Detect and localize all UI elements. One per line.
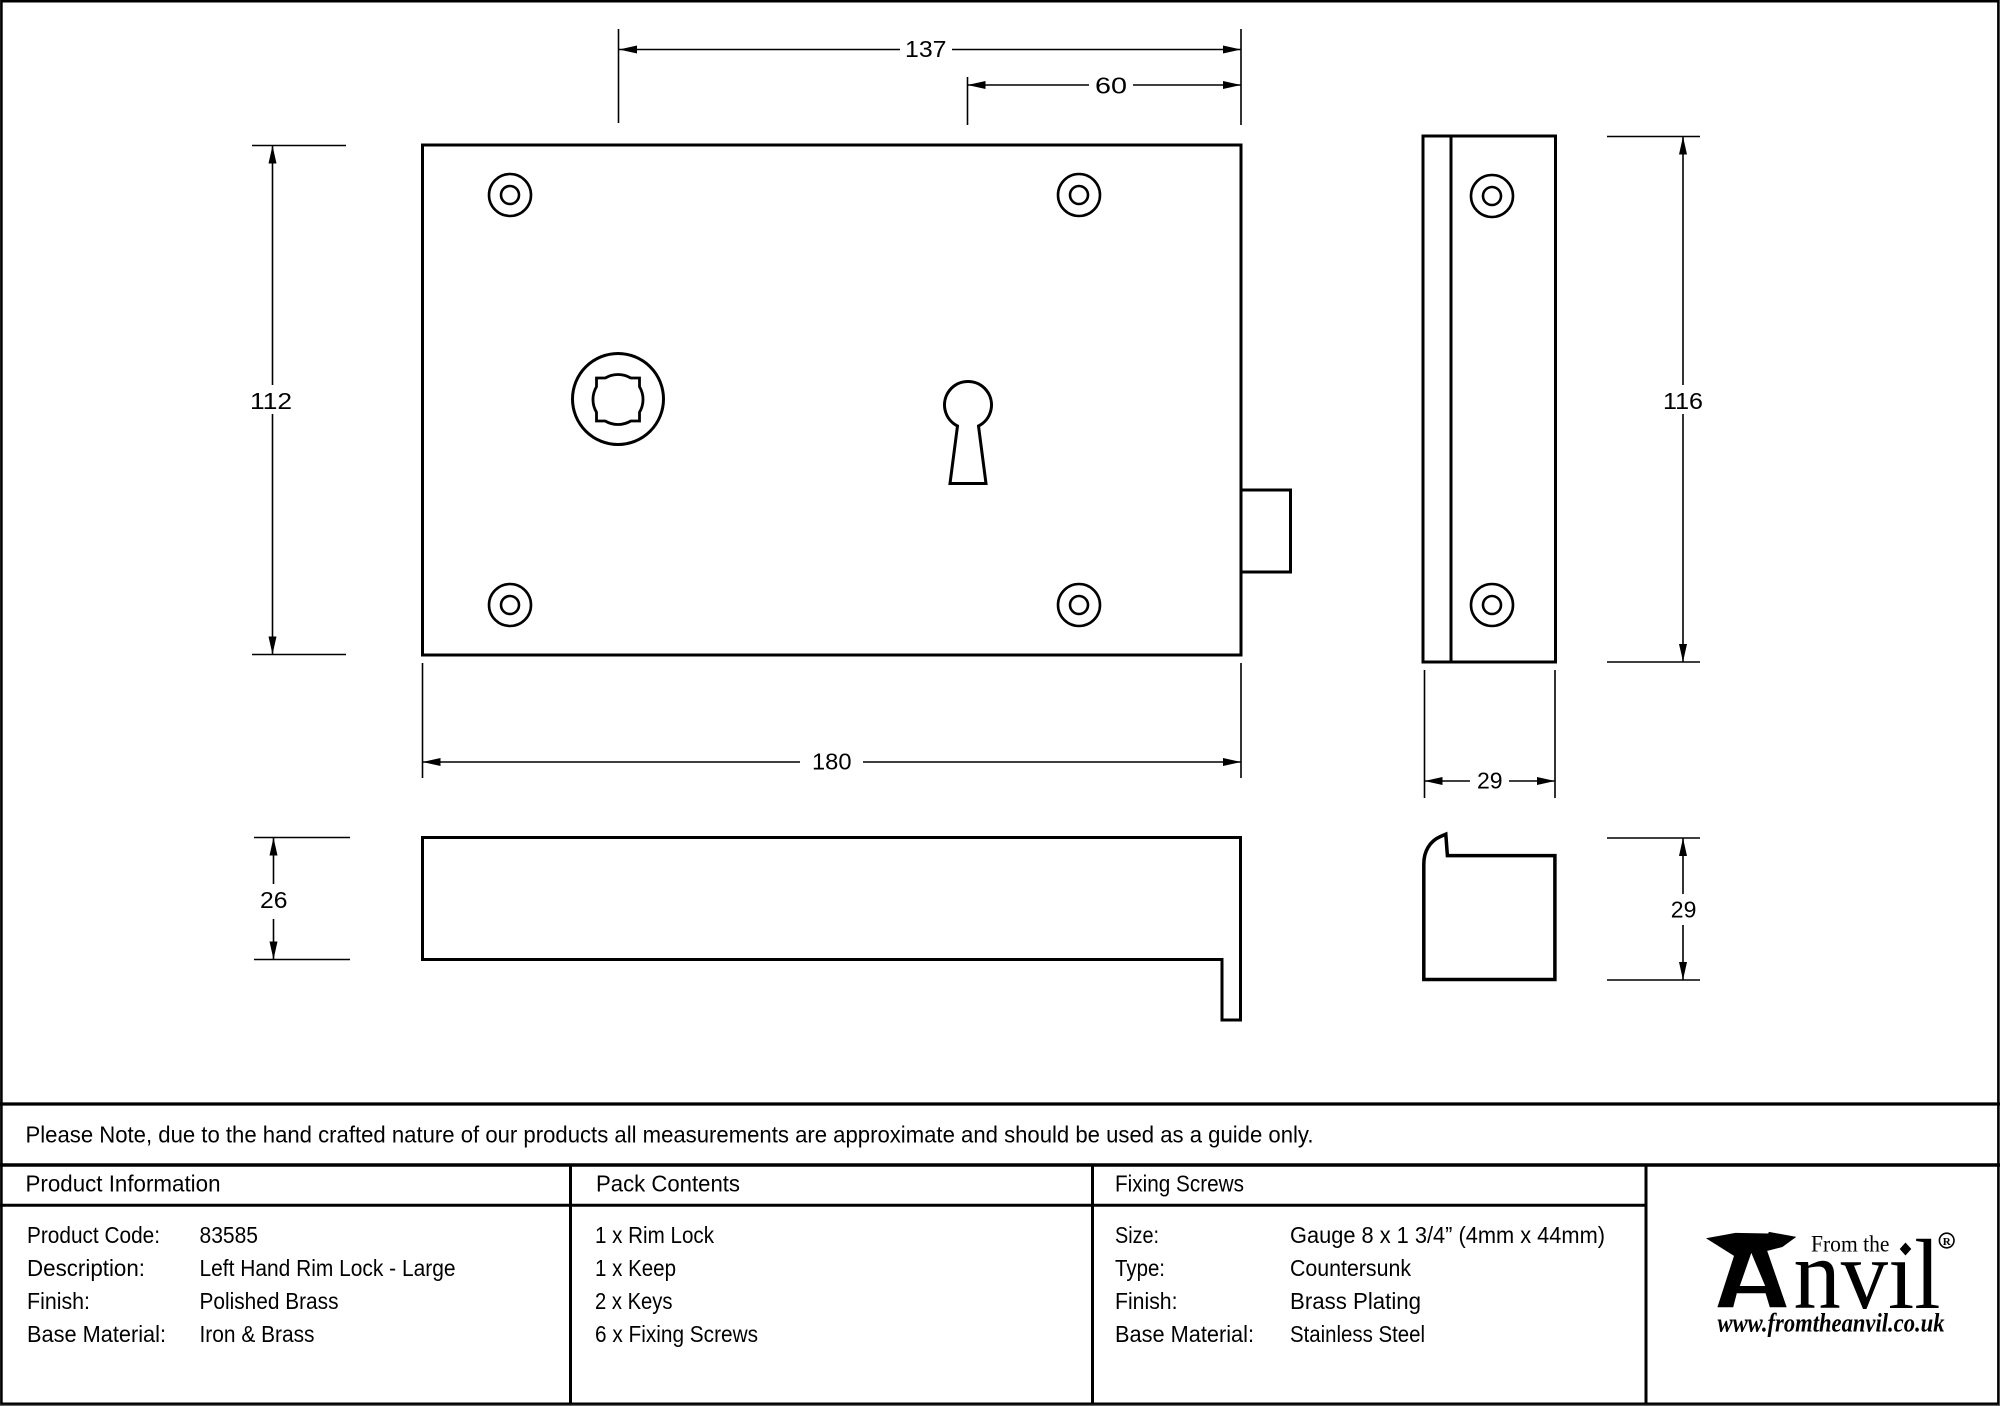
svg-text:Please Note, due to the hand c: Please Note, due to the hand crafted nat…: [26, 1122, 1314, 1148]
svg-text:29: 29: [1671, 897, 1697, 923]
svg-text:Size:: Size:: [1115, 1222, 1159, 1248]
svg-text:Finish:: Finish:: [27, 1288, 90, 1314]
svg-text:26: 26: [260, 887, 288, 913]
svg-text:Pack Contents: Pack Contents: [596, 1170, 740, 1196]
svg-text:2 x Keys: 2 x Keys: [595, 1288, 673, 1314]
svg-text:Countersunk: Countersunk: [1290, 1255, 1411, 1281]
svg-text:116: 116: [1663, 388, 1703, 414]
svg-text:1 x Rim Lock: 1 x Rim Lock: [595, 1222, 714, 1248]
svg-text:112: 112: [250, 388, 292, 414]
svg-text:137: 137: [905, 36, 947, 62]
svg-text:R: R: [1943, 1236, 1952, 1248]
svg-text:Description:: Description:: [27, 1255, 145, 1281]
svg-text:Gauge 8 x 1 3/4” (4mm x 44mm): Gauge 8 x 1 3/4” (4mm x 44mm): [1290, 1222, 1605, 1248]
svg-text:www.fromtheanvil.co.uk: www.fromtheanvil.co.uk: [1718, 1309, 1945, 1338]
svg-text:29: 29: [1477, 768, 1503, 794]
svg-text:60: 60: [1095, 73, 1127, 99]
svg-text:Type:: Type:: [1115, 1255, 1165, 1281]
svg-text:Fixing Screws: Fixing Screws: [1115, 1170, 1244, 1196]
svg-text:180: 180: [812, 749, 852, 775]
svg-text:Left Hand Rim Lock - Large: Left Hand Rim Lock - Large: [200, 1255, 456, 1281]
svg-text:Base Material:: Base Material:: [27, 1321, 166, 1347]
svg-text:Product Code:: Product Code:: [27, 1222, 160, 1248]
svg-text:83585: 83585: [200, 1222, 259, 1248]
svg-text:Polished Brass: Polished Brass: [200, 1288, 339, 1314]
svg-text:Base Material:: Base Material:: [1115, 1321, 1254, 1347]
svg-text:1 x Keep: 1 x Keep: [595, 1255, 676, 1281]
svg-text:Stainless Steel: Stainless Steel: [1290, 1321, 1425, 1347]
svg-text:6 x Fixing Screws: 6 x Fixing Screws: [595, 1321, 758, 1347]
svg-text:Iron & Brass: Iron & Brass: [200, 1321, 315, 1347]
svg-text:Brass Plating: Brass Plating: [1290, 1288, 1421, 1314]
svg-text:Product Information: Product Information: [26, 1170, 221, 1196]
svg-text:Finish:: Finish:: [1115, 1288, 1178, 1314]
